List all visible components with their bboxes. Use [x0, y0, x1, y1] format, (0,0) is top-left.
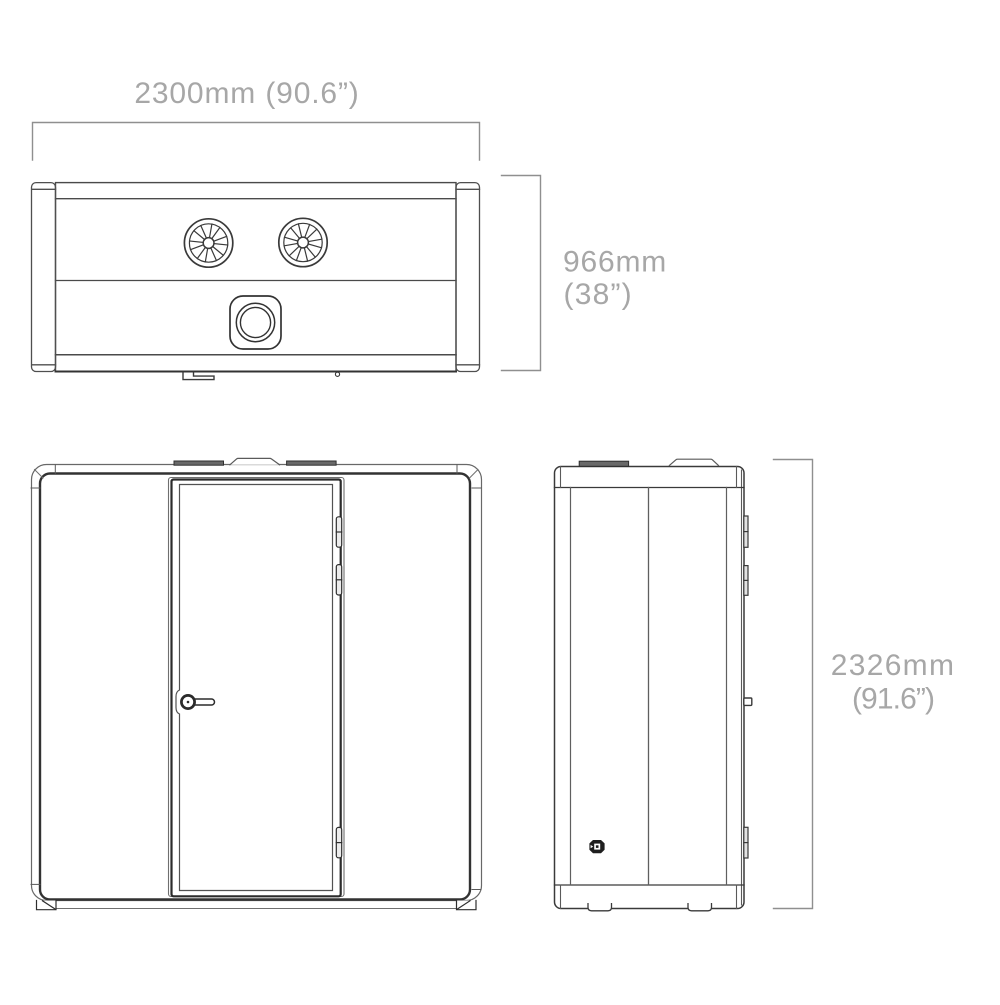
svg-text:966mm: 966mm [563, 246, 667, 279]
svg-text:(38”): (38”) [564, 278, 633, 311]
svg-text:(91.6”): (91.6”) [852, 683, 934, 716]
svg-text:2300mm (90.6”): 2300mm (90.6”) [134, 77, 359, 110]
svg-text:2326mm: 2326mm [831, 649, 956, 682]
